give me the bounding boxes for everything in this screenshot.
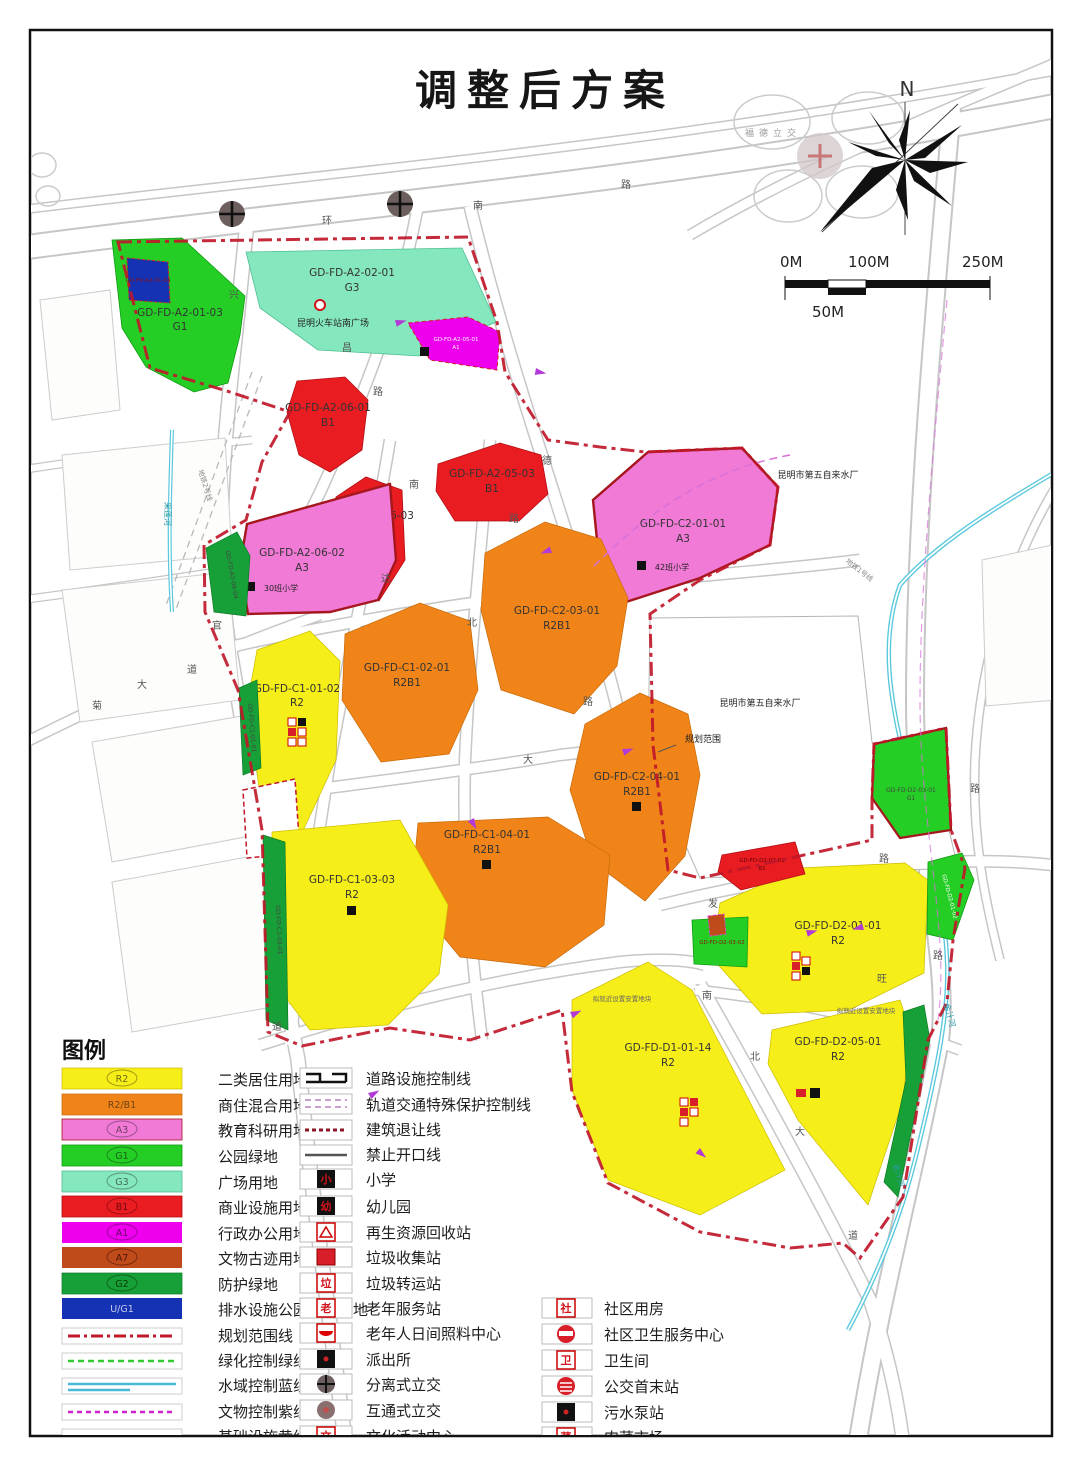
boundary-callout: 规划范围 [685, 733, 721, 745]
road-char: 南 [409, 478, 419, 491]
svg-text:R2: R2 [116, 1074, 129, 1085]
svg-text:R2/B1: R2/B1 [108, 1100, 136, 1111]
svg-text:B1: B1 [116, 1202, 129, 1213]
health-center-icon [559, 1331, 573, 1336]
road-char: 路 [933, 949, 943, 962]
parcel-code: GD-FD-A2-06-01 [285, 402, 371, 414]
svg-text:社区用房: 社区用房 [604, 1300, 664, 1318]
facility-icon [810, 1088, 820, 1098]
cloverleaf-interchange-icon [323, 1407, 329, 1413]
waterplant-label-1: 昆明市第五自来水厂 [777, 469, 858, 481]
parcel-code: GD-FD-A2-02-01 [309, 267, 395, 279]
svg-text:G1: G1 [115, 1151, 128, 1162]
parcel-g2-strip-west: GD-FD-A2-06-04 [206, 532, 250, 616]
parcel-zone: B1 [321, 417, 335, 429]
road-char: 环 [322, 216, 332, 227]
svg-text:水域控制蓝线: 水域控制蓝线 [218, 1377, 308, 1395]
parcel-code: GD-FD-D2-05-01 [795, 1036, 882, 1048]
svg-text:防护绿地: 防护绿地 [218, 1276, 278, 1294]
road-char: 大 [523, 753, 533, 766]
road-char: 大 [137, 678, 147, 691]
svg-text:禁止开口线: 禁止开口线 [366, 1146, 441, 1164]
parcel-code: GD-FD-C1-01-02 [254, 683, 340, 695]
svg-text:商业设施用地: 商业设施用地 [218, 1199, 308, 1217]
parcel-code: GD-FD-A2-01-03 [137, 307, 223, 319]
svg-text:幼: 幼 [321, 1199, 332, 1213]
svg-text:A1: A1 [116, 1228, 129, 1239]
parcel-zone: R2 [290, 697, 304, 709]
facility-icon [347, 906, 356, 915]
svg-text:垃圾收集站: 垃圾收集站 [366, 1249, 441, 1267]
parcel-zone: R2B1 [473, 844, 501, 856]
north-label: N [900, 77, 915, 101]
parcel-code: GD-FD-C1-03-03 [309, 874, 395, 886]
svg-text:公交首末站: 公交首末站 [604, 1378, 679, 1396]
interchange-label: 福德立交 [745, 127, 801, 139]
parcel-code-small: GD-FD-D2-03-01 [886, 787, 936, 794]
school-label-42: 42班小学 [655, 562, 689, 572]
road-char: 路 [970, 782, 980, 795]
road-char: 道 [272, 1020, 282, 1033]
svg-text:文物控制紫线: 文物控制紫线 [218, 1403, 308, 1421]
road-char: 昌 [342, 342, 352, 354]
road-char: 官 [212, 619, 222, 632]
svg-text:公园绿地: 公园绿地 [218, 1148, 278, 1166]
svg-text:老年人日间照料中心: 老年人日间照料中心 [366, 1325, 501, 1343]
svg-text:老: 老 [320, 1301, 332, 1315]
road-char: 路 [509, 512, 519, 525]
parcel-code: GD-FD-D1-01-14 [625, 1042, 712, 1054]
svg-text:分离式立交: 分离式立交 [366, 1376, 441, 1394]
road-char: 路 [621, 178, 631, 191]
road-char: 大 [795, 1125, 805, 1138]
parcel-zone: A3 [295, 562, 309, 574]
parcel-code-small: GD-FD-A2-05-01 [434, 337, 479, 343]
road-char: 路 [879, 852, 889, 865]
svg-text:建筑退让线: 建筑退让线 [366, 1121, 441, 1139]
svg-text:互通式立交: 互通式立交 [366, 1402, 441, 1420]
road-char: 南 [702, 989, 712, 1002]
school-label-30: 30班小学 [264, 583, 298, 593]
road-char: 达 [381, 573, 391, 585]
parcel-a7-heritage [708, 914, 726, 936]
parcel-code: GD-FD-C2-03-01 [514, 605, 600, 617]
svg-text:商住混合用地: 商住混合用地 [218, 1097, 308, 1115]
road-char: 发 [708, 897, 718, 910]
resettlement-note: 拟就近设置安置地块 [837, 1006, 896, 1015]
facility-icon [632, 802, 641, 811]
svg-text:A7: A7 [116, 1253, 129, 1264]
parcel-code: GD-FD-C2-01-01 [640, 518, 726, 530]
road-char: 南 [473, 199, 483, 212]
parcel-code: GD-FD-C2-04-01 [594, 771, 680, 783]
parcel-code: GD-FD-A2-06-02 [259, 547, 345, 559]
road-char: 道 [848, 1229, 858, 1242]
svg-text:绿化控制绿线: 绿化控制绿线 [218, 1352, 308, 1370]
svg-text:社区卫生服务中心: 社区卫生服务中心 [604, 1326, 724, 1344]
facility-icon [796, 1089, 806, 1097]
parcel-code: GD-FD-C1-04-01 [444, 829, 530, 841]
svg-text:卫: 卫 [561, 1354, 572, 1367]
scale-50: 50M [812, 303, 844, 321]
parcel-zone: R2B1 [393, 677, 421, 689]
svg-text:小学: 小学 [366, 1171, 396, 1189]
svg-text:教育科研用地: 教育科研用地 [218, 1122, 308, 1140]
svg-text:轨道交通特殊保护控制线: 轨道交通特殊保护控制线 [366, 1096, 531, 1114]
primary-school-icon [637, 561, 646, 570]
road-char: 北 [750, 1051, 760, 1063]
svg-text:垃: 垃 [321, 1276, 332, 1290]
svg-text:老年服务站: 老年服务站 [366, 1300, 441, 1318]
parcel-zone: R2 [831, 1051, 845, 1063]
parcel-zone: A3 [676, 533, 690, 545]
resettlement-note: 拟就近设置安置地块 [593, 994, 652, 1003]
parcel-zone-small: G1 [907, 795, 916, 802]
parcel-zone: R2 [345, 889, 359, 901]
parcel-zone: B1 [485, 483, 499, 495]
station-square-label: 昆明火车站南广场 [297, 317, 369, 329]
svg-text:道路设施控制线: 道路设施控制线 [366, 1070, 471, 1088]
road-char: 德 [542, 454, 552, 467]
road-char: 菊 [92, 700, 102, 712]
parcel-zone: G3 [345, 282, 360, 294]
parcel-zone: R2B1 [543, 620, 571, 632]
svg-text:社: 社 [560, 1301, 572, 1315]
road-char: 北 [467, 617, 477, 629]
svg-text:派出所: 派出所 [366, 1351, 411, 1369]
road-char: 兴 [229, 289, 239, 301]
legend-title: 图例 [62, 1039, 106, 1064]
svg-text:规划范围线: 规划范围线 [218, 1327, 293, 1345]
parcel-zone-small: B1 [758, 866, 765, 872]
svg-text:卫生间: 卫生间 [604, 1352, 649, 1370]
sewage-pump-icon [564, 1410, 569, 1415]
parcel-code: GD-FD-A2-05-03 [449, 468, 535, 480]
waterplant-label-2: 昆明市第五自来水厂 [719, 697, 800, 709]
svg-text:二类居住用地: 二类居住用地 [218, 1071, 308, 1089]
planning-map-page: GD-FD-A2-01-03 G1 GD-FD-A2-01-04 GD-FD-A… [0, 0, 1080, 1466]
bus-terminal-icon [315, 300, 325, 310]
road-char: 路 [583, 695, 593, 708]
facility-icon [420, 347, 429, 356]
svg-text:文物古迹用地: 文物古迹用地 [218, 1250, 308, 1268]
scale-100: 100M [848, 253, 890, 271]
parcel-zone-small: A1 [452, 345, 459, 351]
parcel-code: GD-FD-C1-02-01 [364, 662, 450, 674]
svg-text:肉菜市场: 肉菜市场 [604, 1429, 664, 1447]
svg-text:U/G1: U/G1 [110, 1304, 134, 1315]
svg-text:小: 小 [320, 1172, 332, 1186]
planning-map-svg: GD-FD-A2-01-03 G1 GD-FD-A2-01-04 GD-FD-A… [0, 0, 1080, 1466]
parcel-zone: R2 [831, 935, 845, 947]
svg-text:广场用地: 广场用地 [218, 1174, 278, 1192]
svg-text:G3: G3 [115, 1177, 128, 1188]
page-title: 调整后方案 [415, 66, 675, 115]
scale-250: 250M [962, 253, 1004, 271]
svg-text:A3: A3 [116, 1125, 129, 1136]
svg-text:污水泵站: 污水泵站 [604, 1404, 664, 1422]
parcel-zone: G1 [173, 321, 188, 333]
river-label: 采莲河 [163, 502, 173, 526]
svg-text:G2: G2 [115, 1279, 128, 1290]
parcel-g2-strip-c1-01-01: GD-FD-C1-01-01 [239, 680, 261, 775]
svg-text:幼儿园: 幼儿园 [366, 1198, 411, 1216]
scale-0: 0M [780, 253, 803, 271]
road-char: 路 [373, 385, 383, 398]
parcel-zone: R2B1 [623, 786, 651, 798]
parcel-zone: R2 [661, 1057, 675, 1069]
police-icon [324, 1357, 329, 1362]
facility-icon [482, 860, 491, 869]
parcel-g2-strip-c1-03-01: GD-FD-C1-03-01 [263, 835, 288, 1030]
road-char: 旺 [877, 974, 887, 985]
parcel-code-small: GD-FD-A2-01-04 [126, 278, 171, 284]
svg-text:垃圾转运站: 垃圾转运站 [366, 1275, 441, 1293]
parcel-code-small: GD-FD-D2-03-02 [699, 940, 745, 946]
svg-text:再生资源回收站: 再生资源回收站 [366, 1224, 471, 1242]
svg-text:行政办公用地: 行政办公用地 [218, 1225, 308, 1243]
road-char: 道 [187, 663, 197, 676]
